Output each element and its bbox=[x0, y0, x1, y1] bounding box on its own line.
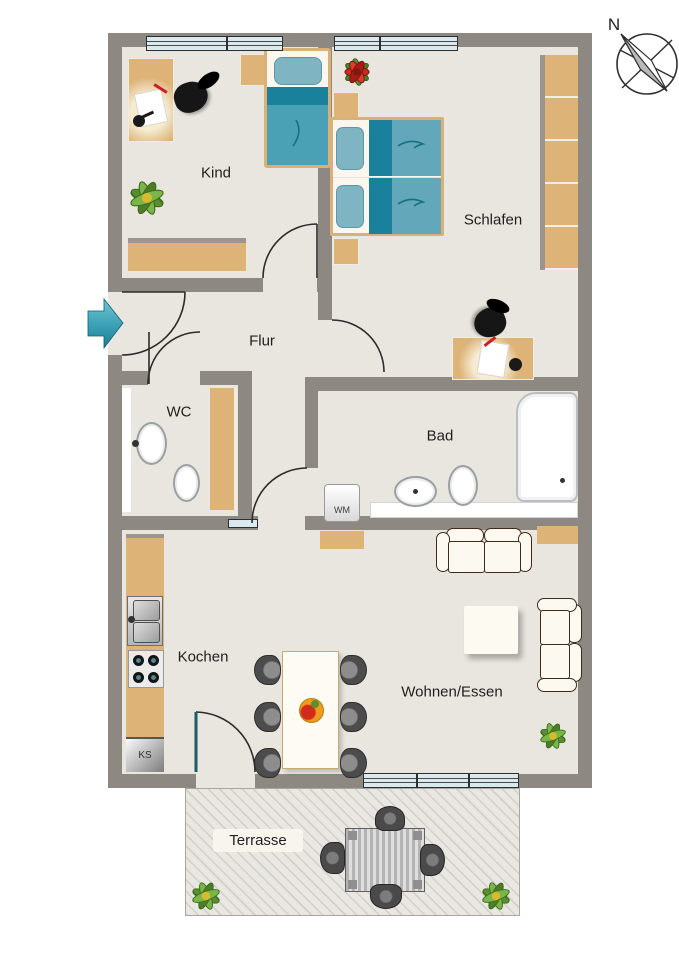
door-arc-kind bbox=[263, 224, 317, 278]
plant-terrace-right bbox=[481, 881, 510, 910]
room-label-schlafen: Schlafen bbox=[464, 212, 522, 229]
door-arc-wc bbox=[148, 332, 200, 384]
room-label-terrasse-box: Terrasse bbox=[213, 829, 303, 852]
door-arc-bad bbox=[252, 468, 307, 523]
door-arc-terrace bbox=[196, 712, 255, 772]
blanket-squiggle bbox=[293, 120, 299, 146]
room-label-wc: WC bbox=[167, 404, 192, 421]
entrance-arrow-icon bbox=[88, 299, 123, 348]
plant-terrace-left bbox=[191, 881, 220, 910]
plant-living bbox=[539, 722, 566, 749]
room-label-kind: Kind bbox=[201, 165, 231, 182]
room-label-bad: Bad bbox=[427, 428, 454, 445]
room-label-flur: Flur bbox=[249, 333, 275, 350]
floorplan-canvas: WM KS bbox=[0, 0, 679, 960]
blanket-squiggle bbox=[398, 199, 423, 206]
compass-icon bbox=[617, 34, 677, 94]
door-arc-schlafen bbox=[332, 320, 384, 372]
room-label-wohnen-essen: Wohnen/Essen bbox=[401, 684, 502, 701]
room-label-kochen: Kochen bbox=[178, 649, 229, 666]
room-label-terrasse: Terrasse bbox=[229, 832, 287, 849]
door-arc-entrance bbox=[122, 292, 185, 355]
vector-overlay bbox=[0, 0, 679, 960]
plant-schlafen bbox=[343, 58, 370, 86]
blanket-squiggle bbox=[398, 141, 423, 148]
plant-kind bbox=[129, 180, 165, 216]
compass-north-label: N bbox=[608, 15, 620, 35]
